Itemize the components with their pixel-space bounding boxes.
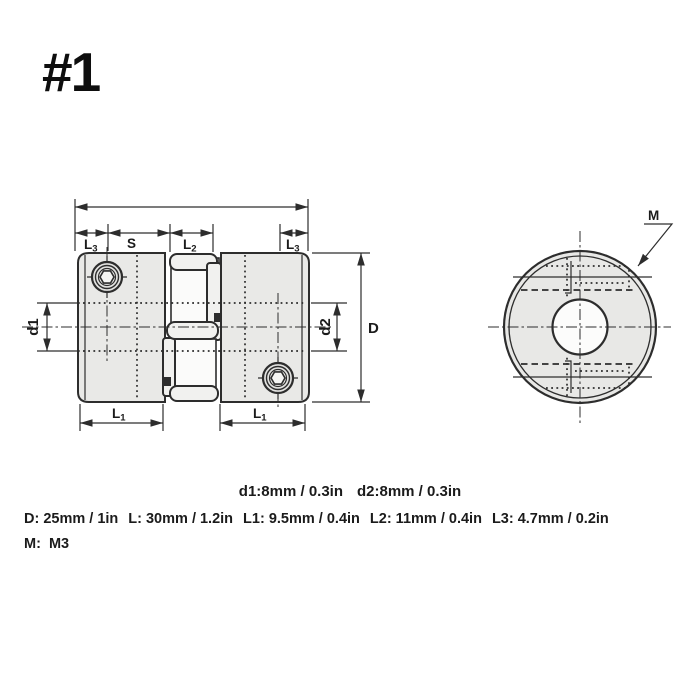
spec-dimension-line: D: 25mm / 1in L: 30mm / 1.2in L1: 9.5mm …	[24, 511, 609, 527]
side-view	[22, 247, 333, 409]
dim-label-L1-left: L1	[112, 406, 126, 424]
jaw-key-mark	[164, 377, 171, 386]
spec-thread-line: M: M3	[24, 536, 69, 552]
spec-item-L2: L2: 11mm / 0.4in	[370, 511, 482, 527]
dim-label-L3-right: L3	[286, 237, 300, 255]
dim-label-D: D	[368, 320, 379, 337]
spec-item-d2: d2:8mm / 0.3in	[357, 483, 461, 500]
dim-label-d2: d2	[317, 318, 334, 336]
spec-item-L3: L3: 4.7mm / 0.2in	[492, 511, 609, 527]
dim-label-S: S	[127, 236, 136, 251]
coupling-technical-drawing: L3 S L2 L3 L1 L1 d1 d2 D M	[0, 0, 700, 700]
thread-label-M: M	[648, 208, 659, 223]
spec-item-M: M: M3	[24, 536, 69, 552]
end-view: M	[488, 208, 672, 424]
thread-callout: M	[638, 208, 672, 266]
dim-label-L1-right: L1	[253, 406, 267, 424]
spec-item-L: L: 30mm / 1.2in	[128, 511, 233, 527]
leader-line	[638, 224, 672, 266]
spec-item-L1: L1: 9.5mm / 0.4in	[243, 511, 360, 527]
dim-label-L2: L2	[183, 237, 197, 255]
jaw-key-mark	[214, 313, 221, 322]
spec-bore-line: d1:8mm / 0.3in d2:8mm / 0.3in	[0, 483, 700, 500]
spec-item-D: D: 25mm / 1in	[24, 511, 118, 527]
spec-item-d1: d1:8mm / 0.3in	[239, 483, 343, 500]
dim-label-L3-left: L3	[84, 237, 98, 255]
dim-label-d1: d1	[25, 318, 42, 336]
